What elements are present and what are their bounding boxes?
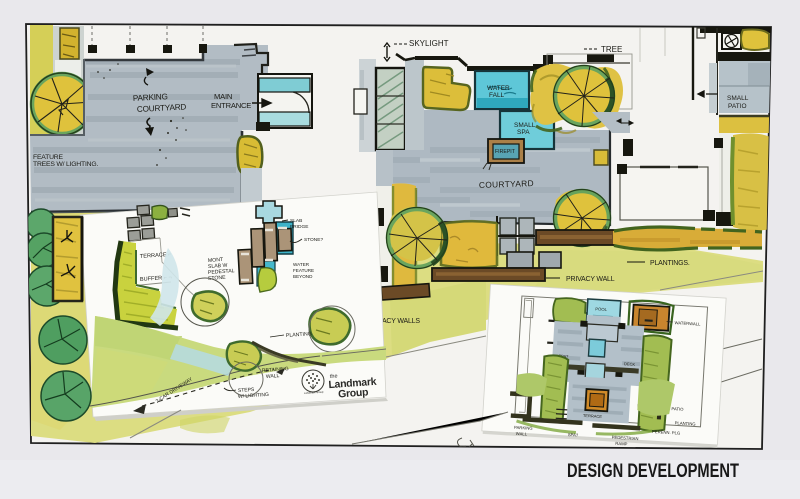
- svg-text:PATIO: PATIO: [671, 406, 684, 412]
- svg-text:Group: Group: [338, 386, 369, 400]
- svg-text:COURTYARD: COURTYARD: [479, 178, 534, 190]
- svg-text:RAMP: RAMP: [615, 441, 628, 447]
- svg-text:FEATURE: FEATURE: [33, 154, 63, 161]
- svg-text:TREES W/ LIGHTING.: TREES W/ LIGHTING.: [33, 161, 98, 168]
- svg-text:SMALL: SMALL: [727, 95, 749, 102]
- svg-text:STONE?: STONE?: [304, 237, 323, 243]
- svg-text:PLANTINGS.: PLANTINGS.: [650, 260, 690, 267]
- svg-text:VACY WALLS: VACY WALLS: [378, 318, 420, 325]
- svg-text:DESIGN DEVELOPMENT: DESIGN DEVELOPMENT: [567, 460, 739, 482]
- svg-text:DECK: DECK: [624, 361, 636, 367]
- svg-text:PATIO: PATIO: [728, 103, 747, 110]
- svg-text:FALL: FALL: [489, 92, 505, 99]
- svg-text:FIREPIT: FIREPIT: [495, 149, 516, 155]
- svg-text:PRIVACY WALL: PRIVACY WALL: [566, 276, 615, 283]
- svg-text:POOL: POOL: [595, 306, 608, 312]
- svg-text:SPA: SPA: [517, 129, 530, 136]
- svg-text:SPA?: SPA?: [568, 432, 579, 438]
- svg-text:WALL: WALL: [516, 431, 528, 437]
- svg-text:FEATURE: FEATURE: [293, 268, 314, 273]
- svg-text:WATER: WATER: [487, 85, 510, 92]
- svg-text:SLAB: SLAB: [290, 218, 302, 224]
- svg-text:SKYLIGHT: SKYLIGHT: [409, 39, 449, 48]
- svg-text:ENTRANCE: ENTRANCE: [211, 101, 251, 110]
- svg-text:PARKING: PARKING: [133, 92, 168, 103]
- svg-text:WATER: WATER: [293, 262, 310, 267]
- svg-text:MAIN: MAIN: [214, 92, 232, 101]
- svg-text:BEYOND: BEYOND: [293, 274, 313, 279]
- svg-text:BRIDGE: BRIDGE: [290, 224, 308, 230]
- svg-text:SMALL: SMALL: [514, 122, 536, 129]
- svg-text:WALL: WALL: [266, 373, 280, 380]
- svg-text:TREE: TREE: [601, 45, 622, 54]
